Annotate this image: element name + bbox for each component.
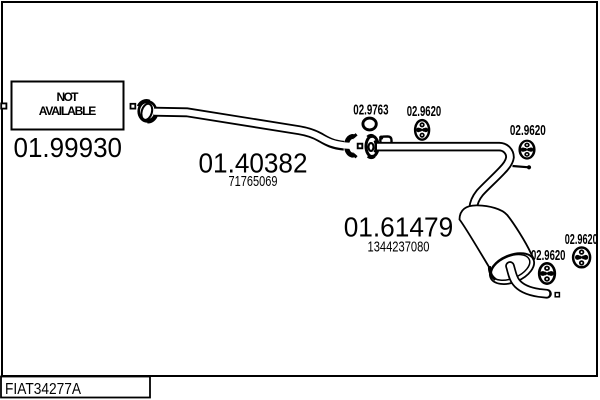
svg-text:01.61479: 01.61479	[344, 211, 454, 242]
svg-text:AVAILABLE: AVAILABLE	[39, 104, 97, 118]
svg-text:NOT: NOT	[57, 90, 80, 104]
svg-text:71765069: 71765069	[229, 173, 278, 190]
svg-text:FIAT34277A: FIAT34277A	[5, 381, 82, 398]
svg-text:02.9620: 02.9620	[565, 231, 598, 248]
svg-text:01.99930: 01.99930	[14, 132, 123, 163]
svg-text:02.9763: 02.9763	[353, 102, 388, 119]
svg-text:1344237080: 1344237080	[368, 240, 430, 256]
svg-text:02.9620: 02.9620	[531, 247, 566, 264]
svg-text:02.9620: 02.9620	[510, 122, 546, 139]
svg-text:02.9620: 02.9620	[407, 103, 442, 120]
